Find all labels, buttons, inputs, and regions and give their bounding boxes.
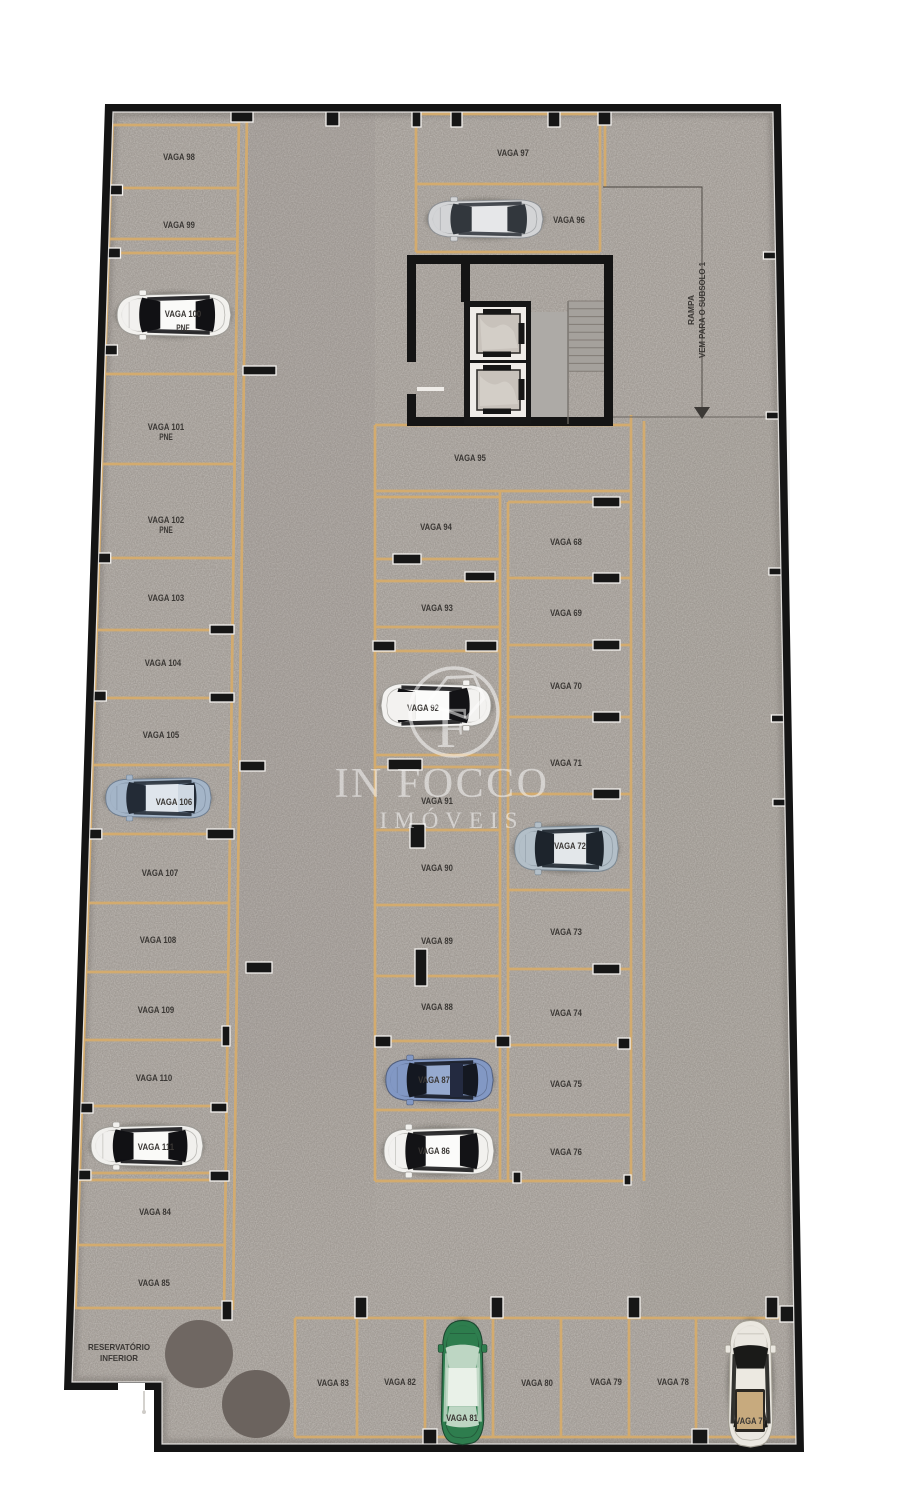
svg-text:VAGA 100: VAGA 100 xyxy=(165,308,201,319)
svg-text:VAGA 95: VAGA 95 xyxy=(454,452,486,463)
svg-text:PNE: PNE xyxy=(159,524,173,535)
svg-text:VAGA 109: VAGA 109 xyxy=(138,1004,174,1015)
svg-text:VAGA 96: VAGA 96 xyxy=(553,214,585,225)
svg-text:VAGA 107: VAGA 107 xyxy=(142,867,178,878)
svg-text:VAGA 105: VAGA 105 xyxy=(143,729,179,740)
svg-text:PNE: PNE xyxy=(159,431,173,442)
svg-text:VAGA 85: VAGA 85 xyxy=(138,1277,170,1288)
svg-text:VAGA 78: VAGA 78 xyxy=(657,1376,689,1387)
svg-text:VAGA 98: VAGA 98 xyxy=(163,151,195,162)
svg-text:VAGA 71: VAGA 71 xyxy=(550,757,582,768)
svg-text:VAGA 70: VAGA 70 xyxy=(550,680,582,691)
svg-text:VAGA 90: VAGA 90 xyxy=(421,862,453,873)
svg-text:VAGA 110: VAGA 110 xyxy=(136,1072,172,1083)
svg-text:VAGA 79: VAGA 79 xyxy=(590,1376,622,1387)
svg-text:VAGA 99: VAGA 99 xyxy=(163,219,195,230)
svg-text:VAGA 73: VAGA 73 xyxy=(550,926,582,937)
svg-text:VAGA 84: VAGA 84 xyxy=(139,1206,171,1217)
svg-text:IN FOCCO: IN FOCCO xyxy=(335,761,550,807)
svg-text:VAGA 86: VAGA 86 xyxy=(418,1145,450,1156)
svg-text:VAGA 94: VAGA 94 xyxy=(420,521,452,532)
svg-text:VAGA 69: VAGA 69 xyxy=(550,607,582,618)
svg-text:VAGA 89: VAGA 89 xyxy=(421,935,453,946)
svg-text:VAGA 76: VAGA 76 xyxy=(550,1146,582,1157)
svg-text:F: F xyxy=(436,695,468,760)
svg-text:VEM PARA O SUBSOLO 1: VEM PARA O SUBSOLO 1 xyxy=(697,262,707,358)
svg-text:VAGA 88: VAGA 88 xyxy=(421,1001,453,1012)
svg-text:VAGA 80: VAGA 80 xyxy=(521,1377,553,1388)
svg-text:VAGA 104: VAGA 104 xyxy=(145,657,182,668)
svg-text:INFERIOR: INFERIOR xyxy=(100,1354,138,1363)
svg-text:VAGA 81: VAGA 81 xyxy=(446,1412,478,1423)
svg-text:VAGA 74: VAGA 74 xyxy=(550,1007,582,1018)
svg-text:RAMPA: RAMPA xyxy=(686,295,696,325)
svg-text:VAGA 82: VAGA 82 xyxy=(384,1376,416,1387)
svg-text:VAGA 108: VAGA 108 xyxy=(140,934,176,945)
svg-text:VAGA 87: VAGA 87 xyxy=(418,1074,450,1085)
svg-text:VAGA 103: VAGA 103 xyxy=(148,592,184,603)
svg-text:IMÓVEIS: IMÓVEIS xyxy=(380,807,525,833)
svg-text:VAGA 68: VAGA 68 xyxy=(550,536,582,547)
svg-text:VAGA 72: VAGA 72 xyxy=(554,840,586,851)
svg-text:VAGA 93: VAGA 93 xyxy=(421,602,453,613)
svg-text:VAGA 83: VAGA 83 xyxy=(317,1377,349,1388)
svg-text:VAGA 77: VAGA 77 xyxy=(735,1415,767,1426)
svg-text:VAGA 106: VAGA 106 xyxy=(156,796,192,807)
svg-text:PNE: PNE xyxy=(176,322,190,333)
svg-text:RESERVATÓRIO: RESERVATÓRIO xyxy=(88,1341,151,1352)
svg-text:VAGA 97: VAGA 97 xyxy=(497,147,529,158)
svg-text:VAGA 111: VAGA 111 xyxy=(138,1141,174,1152)
svg-text:VAGA 75: VAGA 75 xyxy=(550,1078,582,1089)
